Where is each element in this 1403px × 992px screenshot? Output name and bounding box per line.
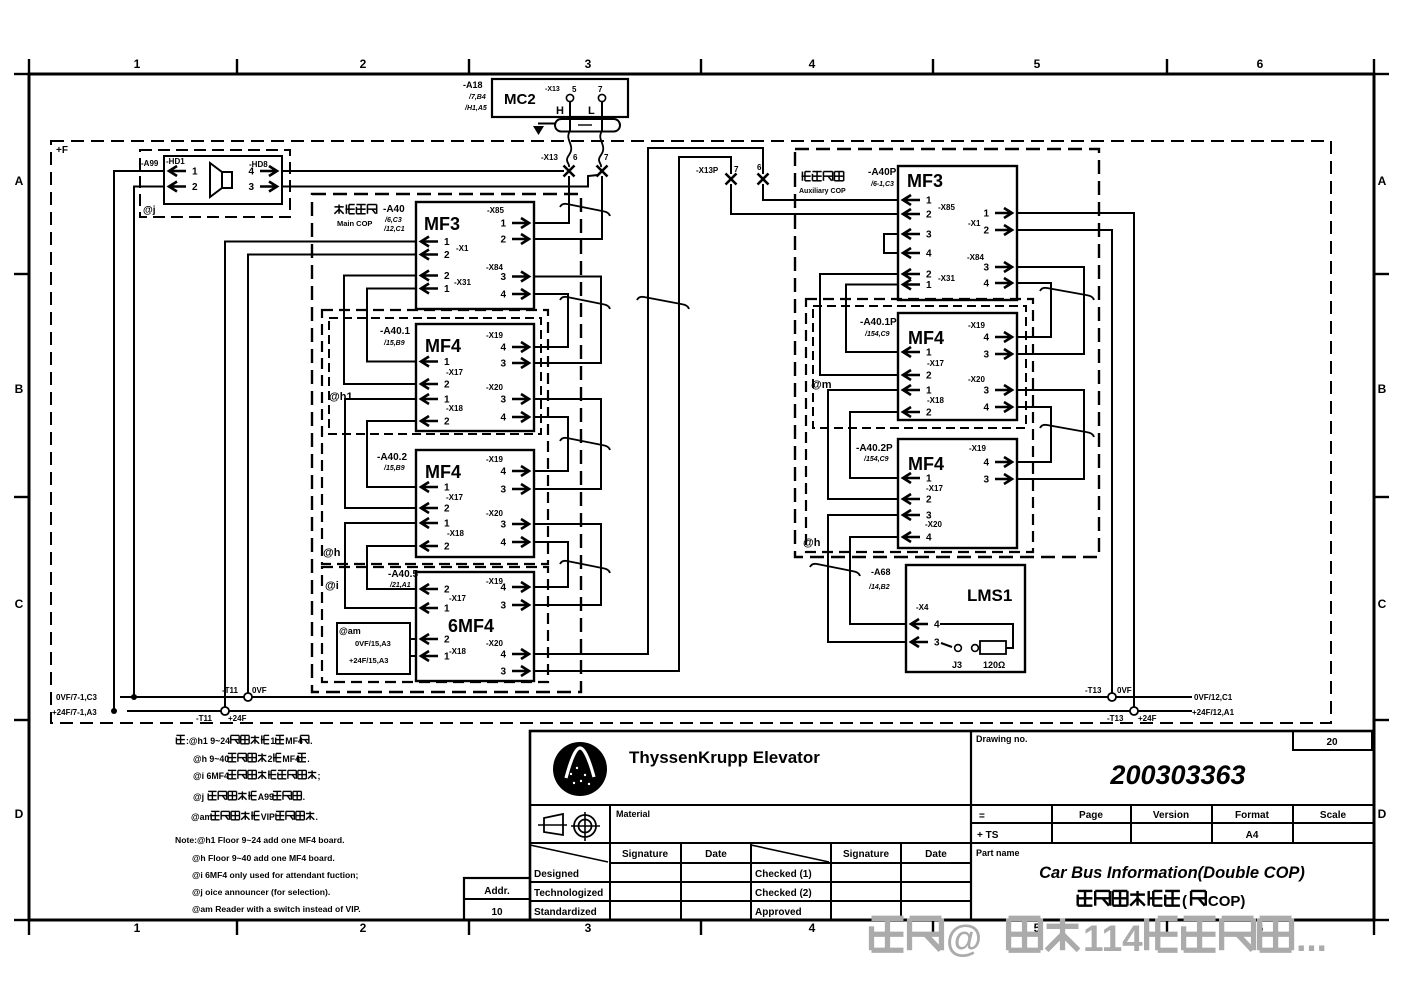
svg-text:0VF: 0VF xyxy=(1117,686,1132,695)
svg-text:200303363: 200303363 xyxy=(1109,760,1245,790)
svg-text:L: L xyxy=(588,105,595,117)
svg-text:-T13: -T13 xyxy=(1085,686,1102,695)
svg-text:-X4: -X4 xyxy=(916,603,929,612)
svg-text:D: D xyxy=(1378,807,1387,821)
svg-text:3: 3 xyxy=(983,475,989,486)
svg-text:-A40.2P: -A40.2P xyxy=(856,443,893,454)
svg-text:-X18: -X18 xyxy=(447,529,464,538)
svg-text:@h: @h xyxy=(323,547,341,559)
svg-text:1: 1 xyxy=(444,284,450,295)
svg-text:1: 1 xyxy=(444,357,450,368)
svg-text:/21,A1: /21,A1 xyxy=(389,582,411,589)
svg-text:MF4: MF4 xyxy=(908,328,944,348)
svg-text:@h1: @h1 xyxy=(329,391,353,403)
svg-text:1: 1 xyxy=(926,280,932,291)
svg-text:Material: Material xyxy=(616,809,650,819)
svg-text:-A40.2: -A40.2 xyxy=(377,452,407,463)
svg-text:4: 4 xyxy=(809,921,816,935)
svg-text:@: @ xyxy=(946,918,982,959)
svg-text:7: 7 xyxy=(734,165,739,174)
svg-text:3: 3 xyxy=(983,263,989,274)
svg-text:LMS1: LMS1 xyxy=(967,586,1012,605)
svg-text:3: 3 xyxy=(934,638,940,649)
svg-text:4: 4 xyxy=(983,458,989,469)
svg-text:4: 4 xyxy=(926,533,932,544)
svg-text:6MF4: 6MF4 xyxy=(448,616,494,636)
svg-text:1: 1 xyxy=(926,196,932,207)
svg-text:3: 3 xyxy=(500,667,506,678)
svg-text:C: C xyxy=(15,597,24,611)
svg-text:-A40.1: -A40.1 xyxy=(380,326,410,337)
svg-text:2: 2 xyxy=(926,495,932,506)
svg-text:2: 2 xyxy=(360,921,367,935)
svg-text:6: 6 xyxy=(573,153,578,162)
svg-text:-T11: -T11 xyxy=(222,686,239,695)
svg-text:Signature: Signature xyxy=(622,849,669,860)
svg-text:Page: Page xyxy=(1079,810,1103,821)
svg-text:Scale: Scale xyxy=(1320,810,1347,821)
svg-text:4: 4 xyxy=(500,343,506,354)
svg-text:COP): COP) xyxy=(1208,893,1246,910)
svg-text:.: . xyxy=(307,754,309,764)
svg-text:-X84: -X84 xyxy=(967,253,984,262)
svg-text:10: 10 xyxy=(491,907,503,918)
svg-text:Format: Format xyxy=(1235,810,1270,821)
svg-text:7: 7 xyxy=(598,85,603,94)
svg-text:A4: A4 xyxy=(1246,830,1259,841)
svg-text:/154,C9: /154,C9 xyxy=(863,456,889,463)
svg-text:4: 4 xyxy=(809,57,816,71)
svg-text:2: 2 xyxy=(926,210,932,221)
svg-text:/12,C1: /12,C1 xyxy=(383,226,405,233)
svg-text:Version: Version xyxy=(1153,810,1189,821)
svg-text:2: 2 xyxy=(500,235,506,246)
svg-text:-X17: -X17 xyxy=(927,359,944,368)
svg-text:6: 6 xyxy=(757,163,762,172)
svg-text:1: 1 xyxy=(270,736,275,746)
svg-text:/15,B9: /15,B9 xyxy=(383,465,405,472)
svg-text:Approved: Approved xyxy=(755,907,802,918)
svg-text:MF4: MF4 xyxy=(908,454,944,474)
svg-text:B: B xyxy=(15,382,24,396)
svg-text:4: 4 xyxy=(500,650,506,661)
svg-text:3: 3 xyxy=(500,485,506,496)
svg-text:3: 3 xyxy=(585,921,592,935)
svg-text:+24F: +24F xyxy=(1138,714,1157,723)
svg-text:-T11: -T11 xyxy=(196,714,213,723)
svg-text:-X17: -X17 xyxy=(446,368,463,377)
svg-text:4: 4 xyxy=(983,279,989,290)
svg-text:7: 7 xyxy=(604,153,609,162)
svg-text:5: 5 xyxy=(572,85,577,94)
svg-text:0VF/12,C1: 0VF/12,C1 xyxy=(1194,693,1233,702)
svg-text:Auxiliary COP: Auxiliary COP xyxy=(799,188,846,195)
svg-text:ThyssenKrupp Elevator: ThyssenKrupp Elevator xyxy=(629,748,820,767)
svg-text:/14,B2: /14,B2 xyxy=(868,584,890,591)
svg-text:-X84: -X84 xyxy=(486,263,503,272)
svg-text:1: 1 xyxy=(444,237,450,248)
svg-text:-A18: -A18 xyxy=(463,80,483,90)
svg-text:1: 1 xyxy=(134,921,141,935)
svg-text:-A99: -A99 xyxy=(141,159,159,168)
svg-text:2: 2 xyxy=(444,417,450,428)
svg-text:-X17: -X17 xyxy=(449,594,466,603)
svg-text:3: 3 xyxy=(248,182,254,193)
svg-text:/H1,A5: /H1,A5 xyxy=(464,105,487,112)
svg-text:A: A xyxy=(1378,174,1387,188)
svg-text:4: 4 xyxy=(500,467,506,478)
svg-text:3: 3 xyxy=(585,57,592,71)
svg-text:@i: @i xyxy=(325,580,339,592)
svg-text:6: 6 xyxy=(1257,57,1264,71)
svg-text:-X13P: -X13P xyxy=(696,166,719,175)
svg-text:Date: Date xyxy=(705,849,727,860)
svg-text:-X20: -X20 xyxy=(925,520,942,529)
svg-text:@h Floor 9~40 add one MF4 boa: @h Floor 9~40 add one MF4 board. xyxy=(192,853,335,863)
svg-text:@h 9~40: @h 9~40 xyxy=(193,754,229,764)
svg-text:(: ( xyxy=(1182,893,1187,910)
svg-text:4: 4 xyxy=(500,538,506,549)
svg-text:0VF/15,A3: 0VF/15,A3 xyxy=(355,639,391,648)
svg-text::@h1 9~24: :@h1 9~24 xyxy=(186,736,230,746)
svg-text:120Ω: 120Ω xyxy=(983,660,1005,670)
svg-text:-X20: -X20 xyxy=(486,509,503,518)
svg-text:3: 3 xyxy=(500,272,506,283)
svg-text:-X17: -X17 xyxy=(926,484,943,493)
svg-text:+24F/12,A1: +24F/12,A1 xyxy=(1192,708,1235,717)
svg-text:1: 1 xyxy=(926,474,932,485)
svg-text:+24F/15,A3: +24F/15,A3 xyxy=(349,656,388,665)
svg-text:MF4: MF4 xyxy=(425,336,461,356)
svg-text:D: D xyxy=(15,807,24,821)
svg-text:/154,C9: /154,C9 xyxy=(864,331,890,338)
svg-text:-X13: -X13 xyxy=(541,153,558,162)
svg-text:-X18: -X18 xyxy=(446,404,463,413)
svg-text:2: 2 xyxy=(192,182,198,193)
svg-text:4: 4 xyxy=(934,620,940,631)
svg-text:-HD1: -HD1 xyxy=(166,157,185,166)
svg-text:Checked (1): Checked (1) xyxy=(755,869,812,880)
svg-text:Addr.: Addr. xyxy=(484,886,510,897)
svg-text:2: 2 xyxy=(444,271,450,282)
svg-text:-X17: -X17 xyxy=(446,493,463,502)
svg-text:.: . xyxy=(303,792,305,802)
svg-text:/6-1,C3: /6-1,C3 xyxy=(870,181,894,188)
svg-text:2: 2 xyxy=(444,542,450,553)
svg-text:J3: J3 xyxy=(952,660,962,670)
svg-text:MC2: MC2 xyxy=(504,91,536,108)
svg-text:1: 1 xyxy=(926,386,932,397)
svg-text:1: 1 xyxy=(926,348,932,359)
svg-text:1: 1 xyxy=(192,167,198,178)
svg-text:+F: +F xyxy=(56,145,68,156)
svg-text:2: 2 xyxy=(983,226,989,237)
svg-text:C: C xyxy=(1378,597,1387,611)
svg-text:Main COP: Main COP xyxy=(337,219,372,228)
svg-text:-X20: -X20 xyxy=(968,375,985,384)
svg-text:2: 2 xyxy=(267,754,272,764)
svg-text:-X20: -X20 xyxy=(486,383,503,392)
svg-text:/6,C3: /6,C3 xyxy=(384,217,402,224)
svg-text:2: 2 xyxy=(444,504,450,515)
svg-text:.: . xyxy=(315,812,317,822)
svg-text:3: 3 xyxy=(500,359,506,370)
svg-text:Standardized: Standardized xyxy=(534,907,597,918)
svg-text:Note:@h1 Floor 9~24 add one M: Note:@h1 Floor 9~24 add one MF4 board. xyxy=(175,835,345,845)
svg-text:-A68: -A68 xyxy=(871,567,891,577)
svg-text:+ TS: + TS xyxy=(977,830,999,841)
svg-text:-X20: -X20 xyxy=(486,639,503,648)
svg-text:@am: @am xyxy=(339,626,361,636)
svg-text:-X18: -X18 xyxy=(449,647,466,656)
svg-text:MF3: MF3 xyxy=(424,214,460,234)
svg-text:0VF/7-1,C3: 0VF/7-1,C3 xyxy=(56,693,97,702)
svg-text:-X19: -X19 xyxy=(486,331,503,340)
svg-text:A99: A99 xyxy=(258,792,274,802)
svg-text:-A40: -A40 xyxy=(383,204,405,215)
svg-text:@j: @j xyxy=(193,792,204,802)
svg-text:-A40P: -A40P xyxy=(868,167,897,178)
svg-text:@am Reader with a switch ins: @am Reader with a switch instead of VIP. xyxy=(192,904,361,914)
svg-text:@j oice announcer (for select: @j oice announcer (for selection). xyxy=(192,887,330,897)
svg-text:1: 1 xyxy=(444,483,450,494)
svg-text:1: 1 xyxy=(983,209,989,220)
svg-text:1: 1 xyxy=(444,604,450,615)
svg-text:1: 1 xyxy=(134,57,141,71)
svg-text:.: . xyxy=(310,736,312,746)
svg-text:@h: @h xyxy=(803,537,821,549)
svg-text:-X13: -X13 xyxy=(545,86,560,93)
svg-text:4: 4 xyxy=(926,249,932,260)
svg-text:3: 3 xyxy=(500,395,506,406)
svg-text:-X19: -X19 xyxy=(968,321,985,330)
svg-text:-X1: -X1 xyxy=(968,219,981,228)
svg-text:=: = xyxy=(979,811,985,822)
svg-text:4: 4 xyxy=(983,333,989,344)
svg-text:@j: @j xyxy=(143,205,156,216)
svg-text:1: 1 xyxy=(500,219,506,230)
svg-text:0VF: 0VF xyxy=(252,686,267,695)
svg-text:/15,B9: /15,B9 xyxy=(383,340,405,347)
svg-text:1: 1 xyxy=(444,519,450,530)
svg-text:-X1: -X1 xyxy=(456,244,469,253)
svg-text:Part name: Part name xyxy=(976,848,1020,858)
svg-text:H: H xyxy=(556,105,564,117)
svg-text:B: B xyxy=(1378,382,1387,396)
svg-text:Signature: Signature xyxy=(843,849,890,860)
svg-text:A: A xyxy=(15,174,24,188)
svg-text:4: 4 xyxy=(248,167,254,178)
svg-text:-X19: -X19 xyxy=(486,455,503,464)
svg-text:Date: Date xyxy=(925,849,947,860)
svg-text:2: 2 xyxy=(444,250,450,261)
svg-text:114: 114 xyxy=(1083,918,1143,959)
svg-text:2: 2 xyxy=(926,270,932,281)
svg-text:+24F: +24F xyxy=(228,714,247,723)
svg-text:-X19: -X19 xyxy=(969,444,986,453)
svg-text:2: 2 xyxy=(444,635,450,646)
svg-text:-X85: -X85 xyxy=(487,206,504,215)
svg-text:4: 4 xyxy=(500,583,506,594)
svg-text:/7,B4: /7,B4 xyxy=(468,94,486,101)
svg-text:3: 3 xyxy=(926,230,932,241)
svg-text:@am: @am xyxy=(191,812,212,822)
svg-text:;: ; xyxy=(317,771,320,781)
svg-text:2: 2 xyxy=(926,371,932,382)
svg-text:-A40.1P: -A40.1P xyxy=(860,317,897,328)
svg-text:VIP: VIP xyxy=(261,812,275,822)
svg-text:-A40.5: -A40.5 xyxy=(388,569,418,580)
svg-text:-X31: -X31 xyxy=(938,274,955,283)
svg-text:2: 2 xyxy=(444,380,450,391)
svg-text:4: 4 xyxy=(500,413,506,424)
svg-text:3: 3 xyxy=(983,386,989,397)
svg-text:Car Bus Information(Double COP: Car Bus Information(Double COP) xyxy=(1039,864,1305,882)
svg-text:-X31: -X31 xyxy=(454,278,471,287)
svg-text:4: 4 xyxy=(983,403,989,414)
svg-text:-T13: -T13 xyxy=(1107,714,1124,723)
svg-text:3: 3 xyxy=(500,520,506,531)
svg-text:Designed: Designed xyxy=(534,869,579,880)
svg-text:MF4: MF4 xyxy=(425,462,461,482)
svg-text:-X85: -X85 xyxy=(938,203,955,212)
svg-text:...: ... xyxy=(1296,918,1327,959)
svg-text:20: 20 xyxy=(1326,737,1338,748)
svg-text:2: 2 xyxy=(360,57,367,71)
svg-text:@i 6MF4: @i 6MF4 xyxy=(193,771,229,781)
svg-text:3: 3 xyxy=(500,601,506,612)
svg-text:3: 3 xyxy=(983,350,989,361)
svg-text:-X18: -X18 xyxy=(927,396,944,405)
svg-text:+24F/7-1,A3: +24F/7-1,A3 xyxy=(52,708,97,717)
svg-text:Technologized: Technologized xyxy=(534,888,603,899)
svg-text:Checked (2): Checked (2) xyxy=(755,888,812,899)
svg-text:4: 4 xyxy=(500,290,506,301)
svg-text:5: 5 xyxy=(1034,57,1041,71)
svg-text:Drawing no.: Drawing no. xyxy=(976,734,1028,744)
svg-text:@i 6MF4 only used for attenda: @i 6MF4 only used for attendant fuction; xyxy=(192,870,359,880)
svg-text:2: 2 xyxy=(926,408,932,419)
svg-text:MF3: MF3 xyxy=(907,171,943,191)
